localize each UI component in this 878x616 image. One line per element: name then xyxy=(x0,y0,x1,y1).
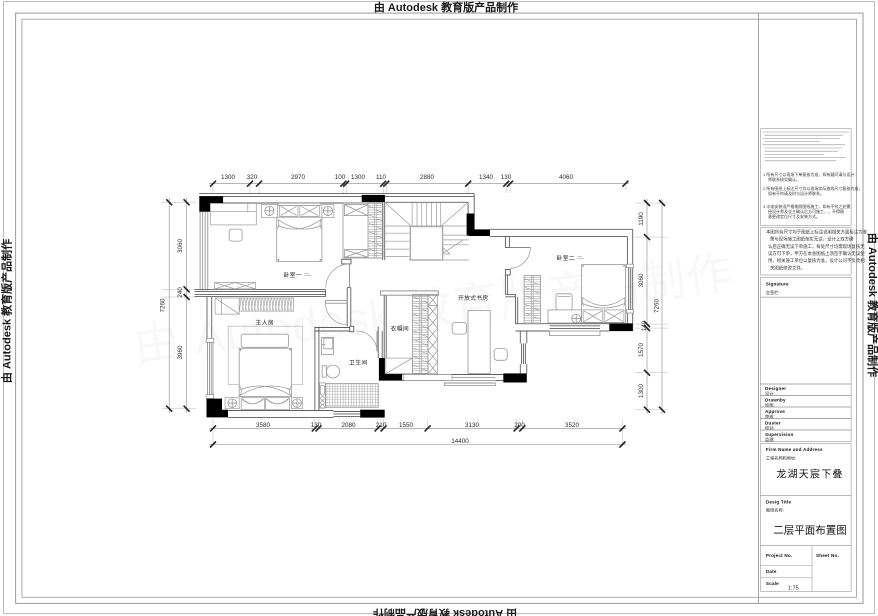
svg-text:3060: 3060 xyxy=(177,239,184,254)
svg-text:校对:: 校对: xyxy=(765,425,775,432)
svg-text:卧室二: 卧室二 xyxy=(557,254,576,262)
svg-text:1550: 1550 xyxy=(399,422,414,429)
svg-text:1190: 1190 xyxy=(638,212,645,226)
svg-text:图纸名称:: 图纸名称: xyxy=(766,507,784,514)
svg-text:由 Autodesk 教育版产品制作: 由 Autodesk 教育版产品制作 xyxy=(374,0,518,14)
svg-text:衣帽间: 衣帽间 xyxy=(391,325,410,333)
svg-text:1300: 1300 xyxy=(351,174,366,181)
svg-text:3580: 3580 xyxy=(256,422,271,429)
svg-text:龙湖天宸下叠: 龙湖天宸下叠 xyxy=(776,468,843,481)
svg-text:监理:: 监理: xyxy=(765,436,775,442)
svg-text:7260: 7260 xyxy=(160,298,167,313)
svg-text:工程名称和地址:: 工程名称和地址: xyxy=(766,455,796,462)
svg-text:Desig Title: Desig Title xyxy=(766,500,792,505)
svg-text:Project No.: Project No. xyxy=(766,553,792,558)
svg-text:320: 320 xyxy=(247,174,258,181)
svg-text:本图所有尺寸均于图纸上标注说明相关方面标注为准: 本图所有尺寸均于图纸上标注说明相关方面标注为准 xyxy=(766,229,868,236)
svg-text:误方可下单，甲方在本会图纸上须签字确认无误使: 误方可下单，甲方在本会图纸上须签字确认无误使 xyxy=(768,250,865,257)
svg-text:Firm Name and Address: Firm Name and Address xyxy=(766,447,823,452)
svg-text:关图纸修改文件。: 关图纸修改文件。 xyxy=(770,264,805,271)
svg-text:1340: 1340 xyxy=(479,174,494,181)
svg-text:绘图:: 绘图: xyxy=(765,402,775,409)
svg-text:1570: 1570 xyxy=(638,343,645,358)
svg-text:130: 130 xyxy=(311,422,322,429)
svg-text:7260: 7260 xyxy=(654,299,661,314)
svg-text:需与现场施工图纸核实无误，设计上双方确: 需与现场施工图纸核实无误，设计上双方确 xyxy=(770,236,854,243)
svg-text:110: 110 xyxy=(376,174,387,181)
svg-text:2080: 2080 xyxy=(341,422,356,429)
svg-text:由 Autodesk 教育版产品制作: 由 Autodesk 教育版产品制作 xyxy=(0,239,14,383)
svg-text:1300: 1300 xyxy=(638,384,645,399)
svg-text:3520: 3520 xyxy=(565,422,580,429)
svg-text:130: 130 xyxy=(501,174,512,181)
svg-text:用，相关施工单位以复核为准，设计公司不负责相: 用，相关施工单位以复核为准，设计公司不负责相 xyxy=(768,257,865,264)
svg-text:开放式书房: 开放式书房 xyxy=(458,294,489,302)
svg-text:由 Autodesk 教育版产品制作: 由 Autodesk 教育版产品制作 xyxy=(866,233,878,377)
svg-text:210: 210 xyxy=(376,422,387,429)
svg-text:审核:: 审核: xyxy=(765,413,775,420)
svg-text:如有不符请及时与设计师联系。: 如有不符请及时与设计师联系。 xyxy=(768,190,824,196)
svg-text:2880: 2880 xyxy=(420,174,435,181)
svg-text:1:75: 1:75 xyxy=(788,586,799,592)
svg-text:240: 240 xyxy=(177,287,184,298)
svg-text:1300: 1300 xyxy=(221,174,236,181)
svg-text:Signature: Signature xyxy=(766,282,789,287)
svg-text:设计:: 设计: xyxy=(765,390,775,397)
svg-text:100: 100 xyxy=(335,174,346,181)
svg-text:Date: Date xyxy=(766,569,777,574)
svg-text:意更改定位尺寸及安装方式。: 意更改定位尺寸及安装方式。 xyxy=(768,213,820,219)
svg-text:会签栏:: 会签栏: xyxy=(766,289,780,296)
svg-text:3060: 3060 xyxy=(638,273,645,288)
svg-text:4060: 4060 xyxy=(559,174,574,181)
svg-text:3960: 3960 xyxy=(177,345,184,360)
svg-text:Sheet No.: Sheet No. xyxy=(816,553,839,558)
svg-text:认后正确无误下单施工，每处尺寸均需现场复核无: 认后正确无误下单施工，每处尺寸均需现场复核无 xyxy=(768,243,865,250)
svg-text:由 Autodesk 教育版产品制作: 由 Autodesk 教育版产品制作 xyxy=(373,607,517,616)
svg-text:140: 140 xyxy=(641,320,648,331)
svg-text:2970: 2970 xyxy=(291,174,306,181)
svg-text:14400: 14400 xyxy=(451,438,469,445)
svg-text:师联系核实确认。: 师联系核实确认。 xyxy=(768,176,800,182)
svg-text:3130: 3130 xyxy=(465,422,480,429)
svg-text:主人房: 主人房 xyxy=(256,319,275,327)
svg-text:二层平面布置图: 二层平面布置图 xyxy=(773,525,847,537)
svg-text:卧室一: 卧室一 xyxy=(284,271,303,279)
svg-text:200: 200 xyxy=(514,422,525,429)
svg-text:卫生间: 卫生间 xyxy=(349,358,368,366)
svg-text:Scale: Scale xyxy=(766,581,779,586)
